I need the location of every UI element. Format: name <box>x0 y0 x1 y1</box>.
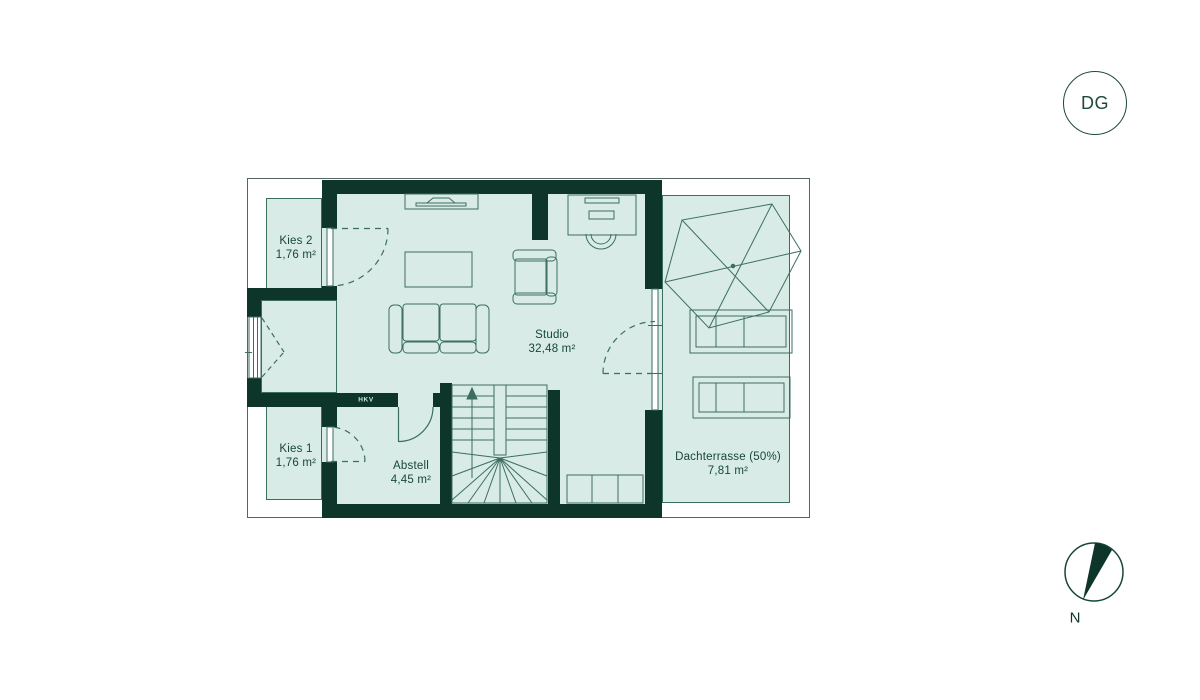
room-label-studio: Studio 32,48 m² <box>529 328 576 356</box>
room-name: Studio <box>529 328 576 342</box>
compass <box>1065 543 1123 601</box>
room-label-abstell: Abstell 4,45 m² <box>391 459 431 487</box>
wall-kies2-above-door <box>322 194 337 228</box>
wall-right-upper <box>645 180 662 289</box>
wall-bottom <box>322 504 662 518</box>
wall-right-lower <box>645 410 662 518</box>
room-label-kies1: Kies 1 1,76 m² <box>276 442 316 470</box>
floor-plan-drawing <box>0 0 1200 700</box>
floor-plan-page: Kies 2 1,76 m² Kies 1 1,76 m² Studio 32,… <box>0 0 1200 700</box>
window-nook-floor <box>261 300 337 393</box>
parasol-pole <box>731 264 735 268</box>
room-area: 1,76 m² <box>276 248 316 262</box>
wall-stairs-left <box>440 383 452 518</box>
kies1-door-frame <box>327 427 333 462</box>
wall-kies1-above-door <box>322 407 337 427</box>
floor-badge: DG <box>1063 71 1127 135</box>
room-name: Dachterrasse (50%) <box>675 450 781 464</box>
terrace-window-door <box>652 289 658 410</box>
room-name: Kies 2 <box>276 234 316 248</box>
wall-left-below-window <box>247 378 261 393</box>
wall-kies1-below-door <box>322 462 337 504</box>
left-window <box>249 317 261 378</box>
room-area: 1,76 m² <box>276 456 316 470</box>
kies2-door-frame <box>327 228 333 286</box>
wall-top <box>322 180 662 194</box>
compass-north-needle <box>1083 543 1112 600</box>
wall-stub-top <box>532 194 548 240</box>
room-area: 4,45 m² <box>391 473 431 487</box>
room-name: Abstell <box>391 459 431 473</box>
room-label-kies2: Kies 2 1,76 m² <box>276 234 316 262</box>
room-area: 7,81 m² <box>675 464 781 478</box>
room-area: 32,48 m² <box>529 342 576 356</box>
room-name: Kies 1 <box>276 442 316 456</box>
hkv-label: HKV <box>358 397 374 404</box>
wall-left-above-window <box>247 300 261 317</box>
wall-hkv <box>247 393 398 407</box>
wall-stairs-right <box>548 390 560 518</box>
compass-north-label: N <box>1070 610 1081 627</box>
room-label-terrace: Dachterrasse (50%) 7,81 m² <box>675 450 781 478</box>
wall-mid-left <box>247 288 337 300</box>
